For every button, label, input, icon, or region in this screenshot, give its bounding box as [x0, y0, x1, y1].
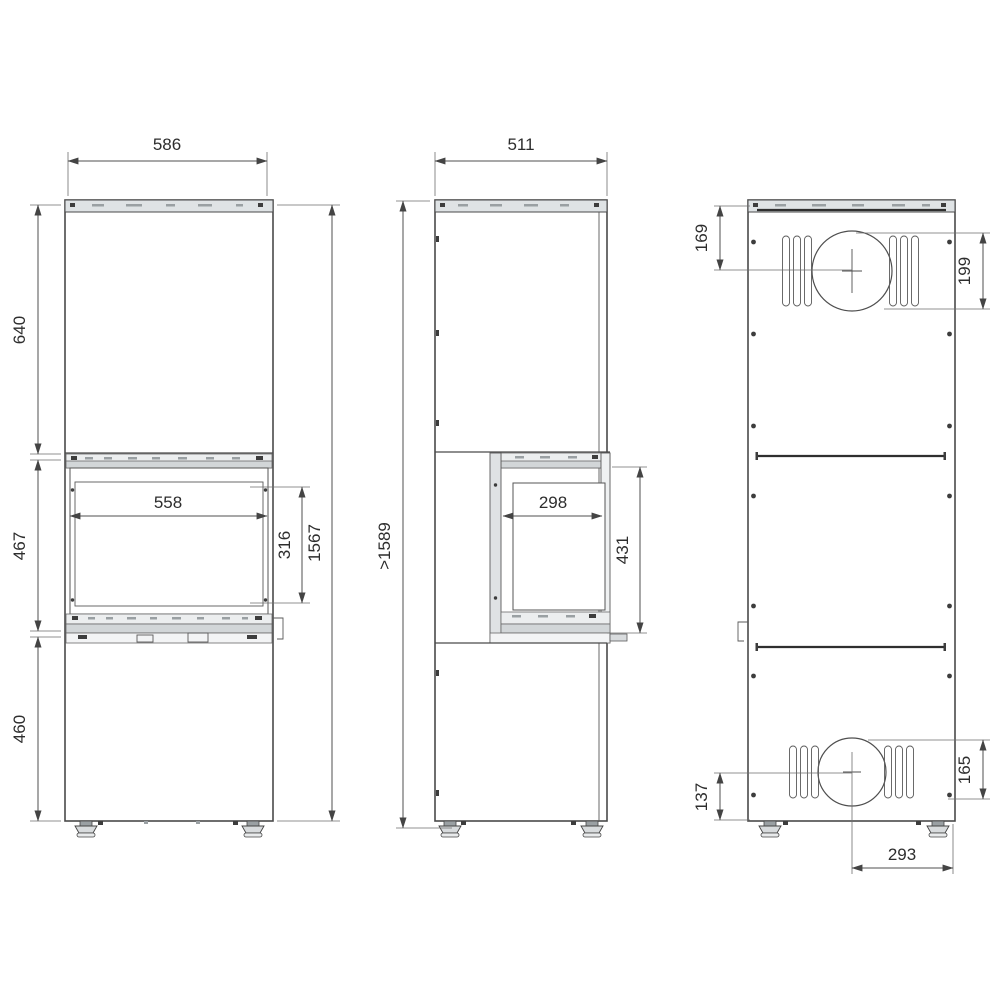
rear-top-flue-extent-label: 199: [955, 257, 974, 285]
rear-right-foot: [927, 821, 949, 837]
front-view: [65, 200, 283, 837]
dim-front-overall-width: 586: [68, 135, 267, 196]
dim-side-door-height: 431: [607, 467, 647, 633]
side-left-foot: [439, 821, 461, 837]
front-total-height-label: 1567: [305, 524, 324, 562]
front-firebox-height-label: 467: [10, 532, 29, 560]
rear-view: [738, 200, 955, 837]
front-right-foot: [242, 821, 264, 837]
front-overall-width-label: 586: [153, 135, 181, 154]
front-firebox-top-strip: [66, 454, 272, 468]
dim-front-upper-height: 640: [10, 205, 61, 454]
front-firebox-bottom-strip: [66, 614, 272, 643]
side-door-height-label: 431: [613, 536, 632, 564]
rear-bottom-flue-extent-label: 165: [955, 756, 974, 784]
front-base-height-label: 460: [10, 715, 29, 743]
dim-front-base-height: 460: [10, 637, 61, 821]
technical-drawing-canvas: 586 640 467 460 1567 558 316: [0, 0, 1000, 1000]
side-glass-depth-label: 298: [539, 493, 567, 512]
dim-front-firebox-height: 467: [10, 460, 61, 631]
dim-side-overall-depth: 511: [435, 135, 607, 196]
stove-dimension-drawing: 586 640 467 460 1567 558 316: [0, 0, 1000, 1000]
front-glass-height-label: 316: [275, 531, 294, 559]
dim-front-total-height: 1567: [277, 205, 340, 821]
front-top-panel: [65, 200, 273, 212]
front-base-bolt: [98, 821, 103, 825]
front-left-foot: [75, 821, 97, 837]
side-firebox-frame-band: [490, 453, 501, 643]
side-bottom-ledge: [610, 634, 627, 641]
front-glass-door: [70, 468, 268, 614]
side-top-panel: [435, 200, 607, 212]
front-upper-height-label: 640: [10, 316, 29, 344]
side-overall-depth-label: 511: [507, 135, 534, 154]
side-view: [435, 200, 627, 837]
rear-bottom-flue-offset-label: 137: [692, 783, 711, 811]
side-min-total-height-label: >1589: [375, 522, 394, 570]
rear-top-panel: [748, 200, 955, 212]
side-right-foot: [581, 821, 603, 837]
rear-left-foot: [759, 821, 781, 837]
front-glass-width-label: 558: [154, 493, 182, 512]
rear-top-flue-offset-label: 169: [692, 224, 711, 252]
front-base-bolt: [233, 821, 238, 825]
rear-side-hook: [738, 622, 748, 641]
rear-bottom-flue-horizontal-label: 293: [888, 845, 916, 864]
rear-top-flue-outlet: [812, 231, 892, 311]
